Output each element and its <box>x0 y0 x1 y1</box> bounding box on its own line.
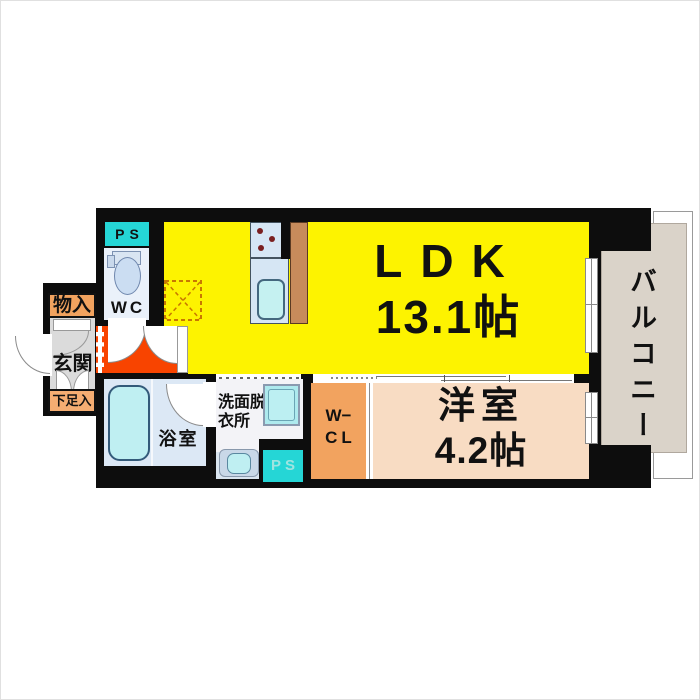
walk-in-closet-label-line2: CL <box>311 427 366 449</box>
boundary-dots <box>331 377 377 379</box>
western-room-window <box>585 392 598 444</box>
room-wc: WC <box>104 248 149 320</box>
balcony-label: バルコニー <box>619 247 661 467</box>
ldk-label-block: LDK 13.1帖 <box>331 233 566 345</box>
bathroom-label: 浴室 <box>151 425 206 451</box>
ldk-door-leaf <box>177 326 188 373</box>
closet-sliding-door <box>366 383 373 479</box>
western-room-size: 4.2帖 <box>373 428 589 473</box>
walk-in-closet-label: W− CL <box>311 405 366 449</box>
ldk-size: 13.1帖 <box>331 289 566 345</box>
pipe-space-bottom: PS <box>263 450 303 482</box>
fridge-space <box>290 222 308 324</box>
sliding-door-tick-2 <box>509 375 510 382</box>
dashed-storage-marker <box>164 280 202 321</box>
pipe-space-bottom-label: PS <box>263 450 303 482</box>
ldk-western-sliding-pane-1 <box>376 376 506 377</box>
ldk-label: LDK <box>331 233 566 289</box>
pipe-space-top-label: PS <box>105 222 149 246</box>
kitchen-sink <box>257 279 285 320</box>
pipe-space-top: PS <box>105 222 149 246</box>
washing-machine-pan <box>263 384 300 426</box>
bathtub-icon <box>108 385 150 461</box>
entrance-step-line <box>96 326 104 373</box>
vanity-sink-bowl <box>227 453 251 474</box>
floor-plan-image: バルコニー LDK 13.1帖 PS WC <box>0 0 700 700</box>
entrance-closet <box>53 319 91 331</box>
room-walk-in-closet: W− CL <box>311 383 366 479</box>
toilet-button-icon <box>107 255 115 268</box>
washroom-label-line1: 洗面脱 <box>218 393 266 412</box>
ldk-western-sliding-pane-2 <box>441 380 572 381</box>
western-window-center-line <box>591 393 592 443</box>
washroom-label: 洗面脱 衣所 <box>218 393 266 431</box>
walk-in-closet-label-line1: W− <box>311 405 366 427</box>
sliding-door-tick-1 <box>444 375 445 382</box>
room-shoe-storage: 下足入 <box>48 389 96 413</box>
ldk-window <box>585 258 598 353</box>
wc-label: WC <box>104 298 149 318</box>
toilet-bowl-icon <box>114 257 141 295</box>
closet-sliding-door-line <box>369 383 370 479</box>
ldk-window-tick <box>586 304 597 305</box>
bathroom-divider <box>151 379 153 466</box>
storage-label: 物入 <box>50 295 94 316</box>
washing-machine-pan-inner <box>268 389 295 421</box>
western-room-label: 洋室 <box>373 383 589 428</box>
western-window-tick <box>586 417 597 418</box>
room-western: 洋室 4.2帖 <box>373 383 589 479</box>
room-storage: 物入 <box>48 293 96 318</box>
ldk-window-center-line <box>591 259 592 352</box>
washroom-label-line2: 衣所 <box>218 412 266 431</box>
shoe-storage-label: 下足入 <box>50 391 94 411</box>
wall-balcony-top-block <box>589 208 651 251</box>
front-door-arc <box>15 336 50 374</box>
room-entrance: 玄関 <box>50 318 95 394</box>
bathroom-door-opening <box>203 382 216 427</box>
western-room-label-block: 洋室 4.2帖 <box>373 383 589 473</box>
